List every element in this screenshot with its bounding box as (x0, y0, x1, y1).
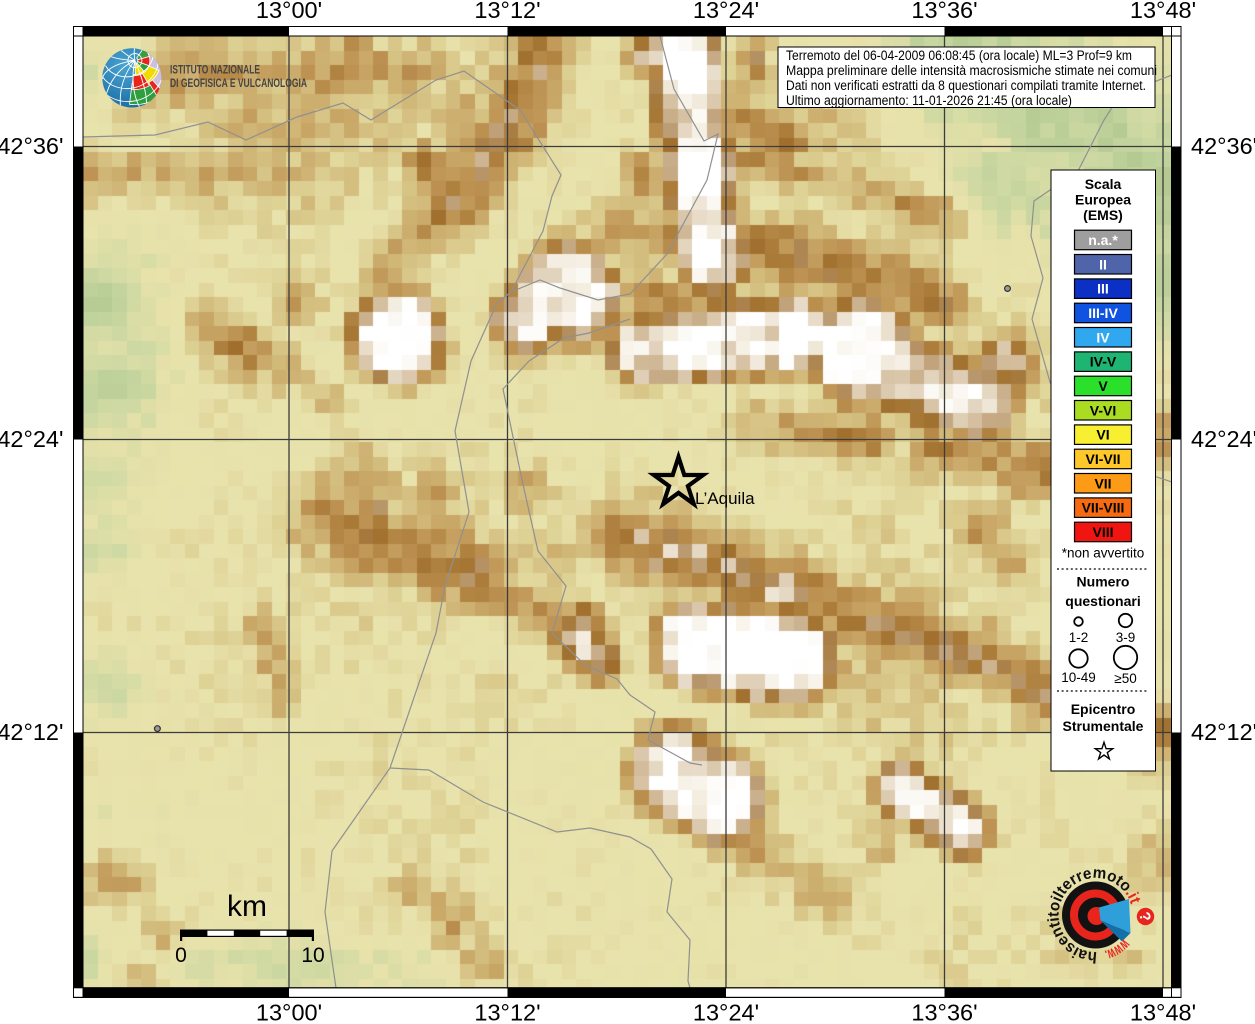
svg-text:VI: VI (1096, 427, 1109, 443)
svg-text:3-9: 3-9 (1116, 630, 1136, 645)
svg-text:42°12': 42°12' (0, 719, 64, 745)
svg-text:*non avvertito: *non avvertito (1062, 546, 1145, 561)
svg-text:Ultimo aggiornamento: 11-01-20: Ultimo aggiornamento: 11-01-2026 21:45 (… (786, 93, 1072, 108)
svg-text:III-IV: III-IV (1088, 305, 1118, 321)
svg-text:Dati non verificati estratti d: Dati non verificati estratti da 8 questi… (786, 78, 1146, 93)
svg-text:13°24': 13°24' (693, 0, 759, 23)
svg-text:42°36': 42°36' (0, 133, 64, 159)
svg-text:13°00': 13°00' (256, 1000, 322, 1024)
svg-text:42°36': 42°36' (1191, 133, 1255, 159)
svg-text:II: II (1099, 256, 1107, 272)
svg-text:13°48': 13°48' (1130, 0, 1196, 23)
svg-text:≥50: ≥50 (1114, 671, 1136, 686)
svg-text:VII: VII (1094, 475, 1111, 491)
svg-text:VI-VII: VI-VII (1085, 451, 1120, 467)
svg-text:13°48': 13°48' (1130, 1000, 1196, 1024)
svg-text:13°00': 13°00' (256, 0, 322, 23)
svg-text:V: V (1098, 378, 1108, 394)
svg-text:13°24': 13°24' (693, 1000, 759, 1024)
svg-text:L’Aquila: L’Aquila (695, 489, 755, 508)
svg-text:13°12': 13°12' (474, 0, 540, 23)
svg-text:0: 0 (175, 944, 187, 967)
svg-text:42°24': 42°24' (0, 426, 64, 452)
svg-text:Terremoto del 06-04-2009 06:08: Terremoto del 06-04-2009 06:08:45 (ora l… (786, 48, 1132, 63)
svg-text:Epicentro: Epicentro (1071, 701, 1136, 717)
svg-text:1-2: 1-2 (1069, 630, 1089, 645)
svg-text:Mappa preliminare delle intens: Mappa preliminare delle intensità macros… (786, 63, 1157, 78)
svg-text:VII-VIII: VII-VIII (1082, 500, 1125, 516)
svg-text:III: III (1097, 281, 1109, 297)
svg-text:13°12': 13°12' (474, 1000, 540, 1024)
svg-text:km: km (227, 890, 267, 923)
svg-text:VIII: VIII (1092, 524, 1113, 540)
svg-text:Scala: Scala (1085, 176, 1122, 192)
svg-text:questionari: questionari (1065, 593, 1140, 609)
svg-text:42°24': 42°24' (1191, 426, 1255, 452)
svg-text:Europea: Europea (1075, 192, 1131, 208)
svg-text:IV-V: IV-V (1090, 354, 1117, 370)
svg-text:IV: IV (1096, 329, 1110, 345)
svg-text:10-49: 10-49 (1061, 670, 1096, 685)
svg-text:Strumentale: Strumentale (1063, 718, 1144, 734)
svg-text:DI GEOFISICA E VULCANOLOGIA: DI GEOFISICA E VULCANOLOGIA (170, 76, 307, 90)
svg-text:Numero: Numero (1077, 574, 1130, 590)
svg-text:(EMS): (EMS) (1083, 207, 1123, 223)
svg-text:ISTITUTO NAZIONALE: ISTITUTO NAZIONALE (170, 63, 260, 77)
svg-text:V-VI: V-VI (1090, 402, 1116, 418)
svg-text:42°12': 42°12' (1191, 719, 1255, 745)
svg-text:n.a.*: n.a.* (1088, 232, 1118, 248)
svg-text:10: 10 (301, 944, 324, 967)
svg-text:13°36': 13°36' (911, 0, 977, 23)
svg-text:13°36': 13°36' (911, 1000, 977, 1024)
